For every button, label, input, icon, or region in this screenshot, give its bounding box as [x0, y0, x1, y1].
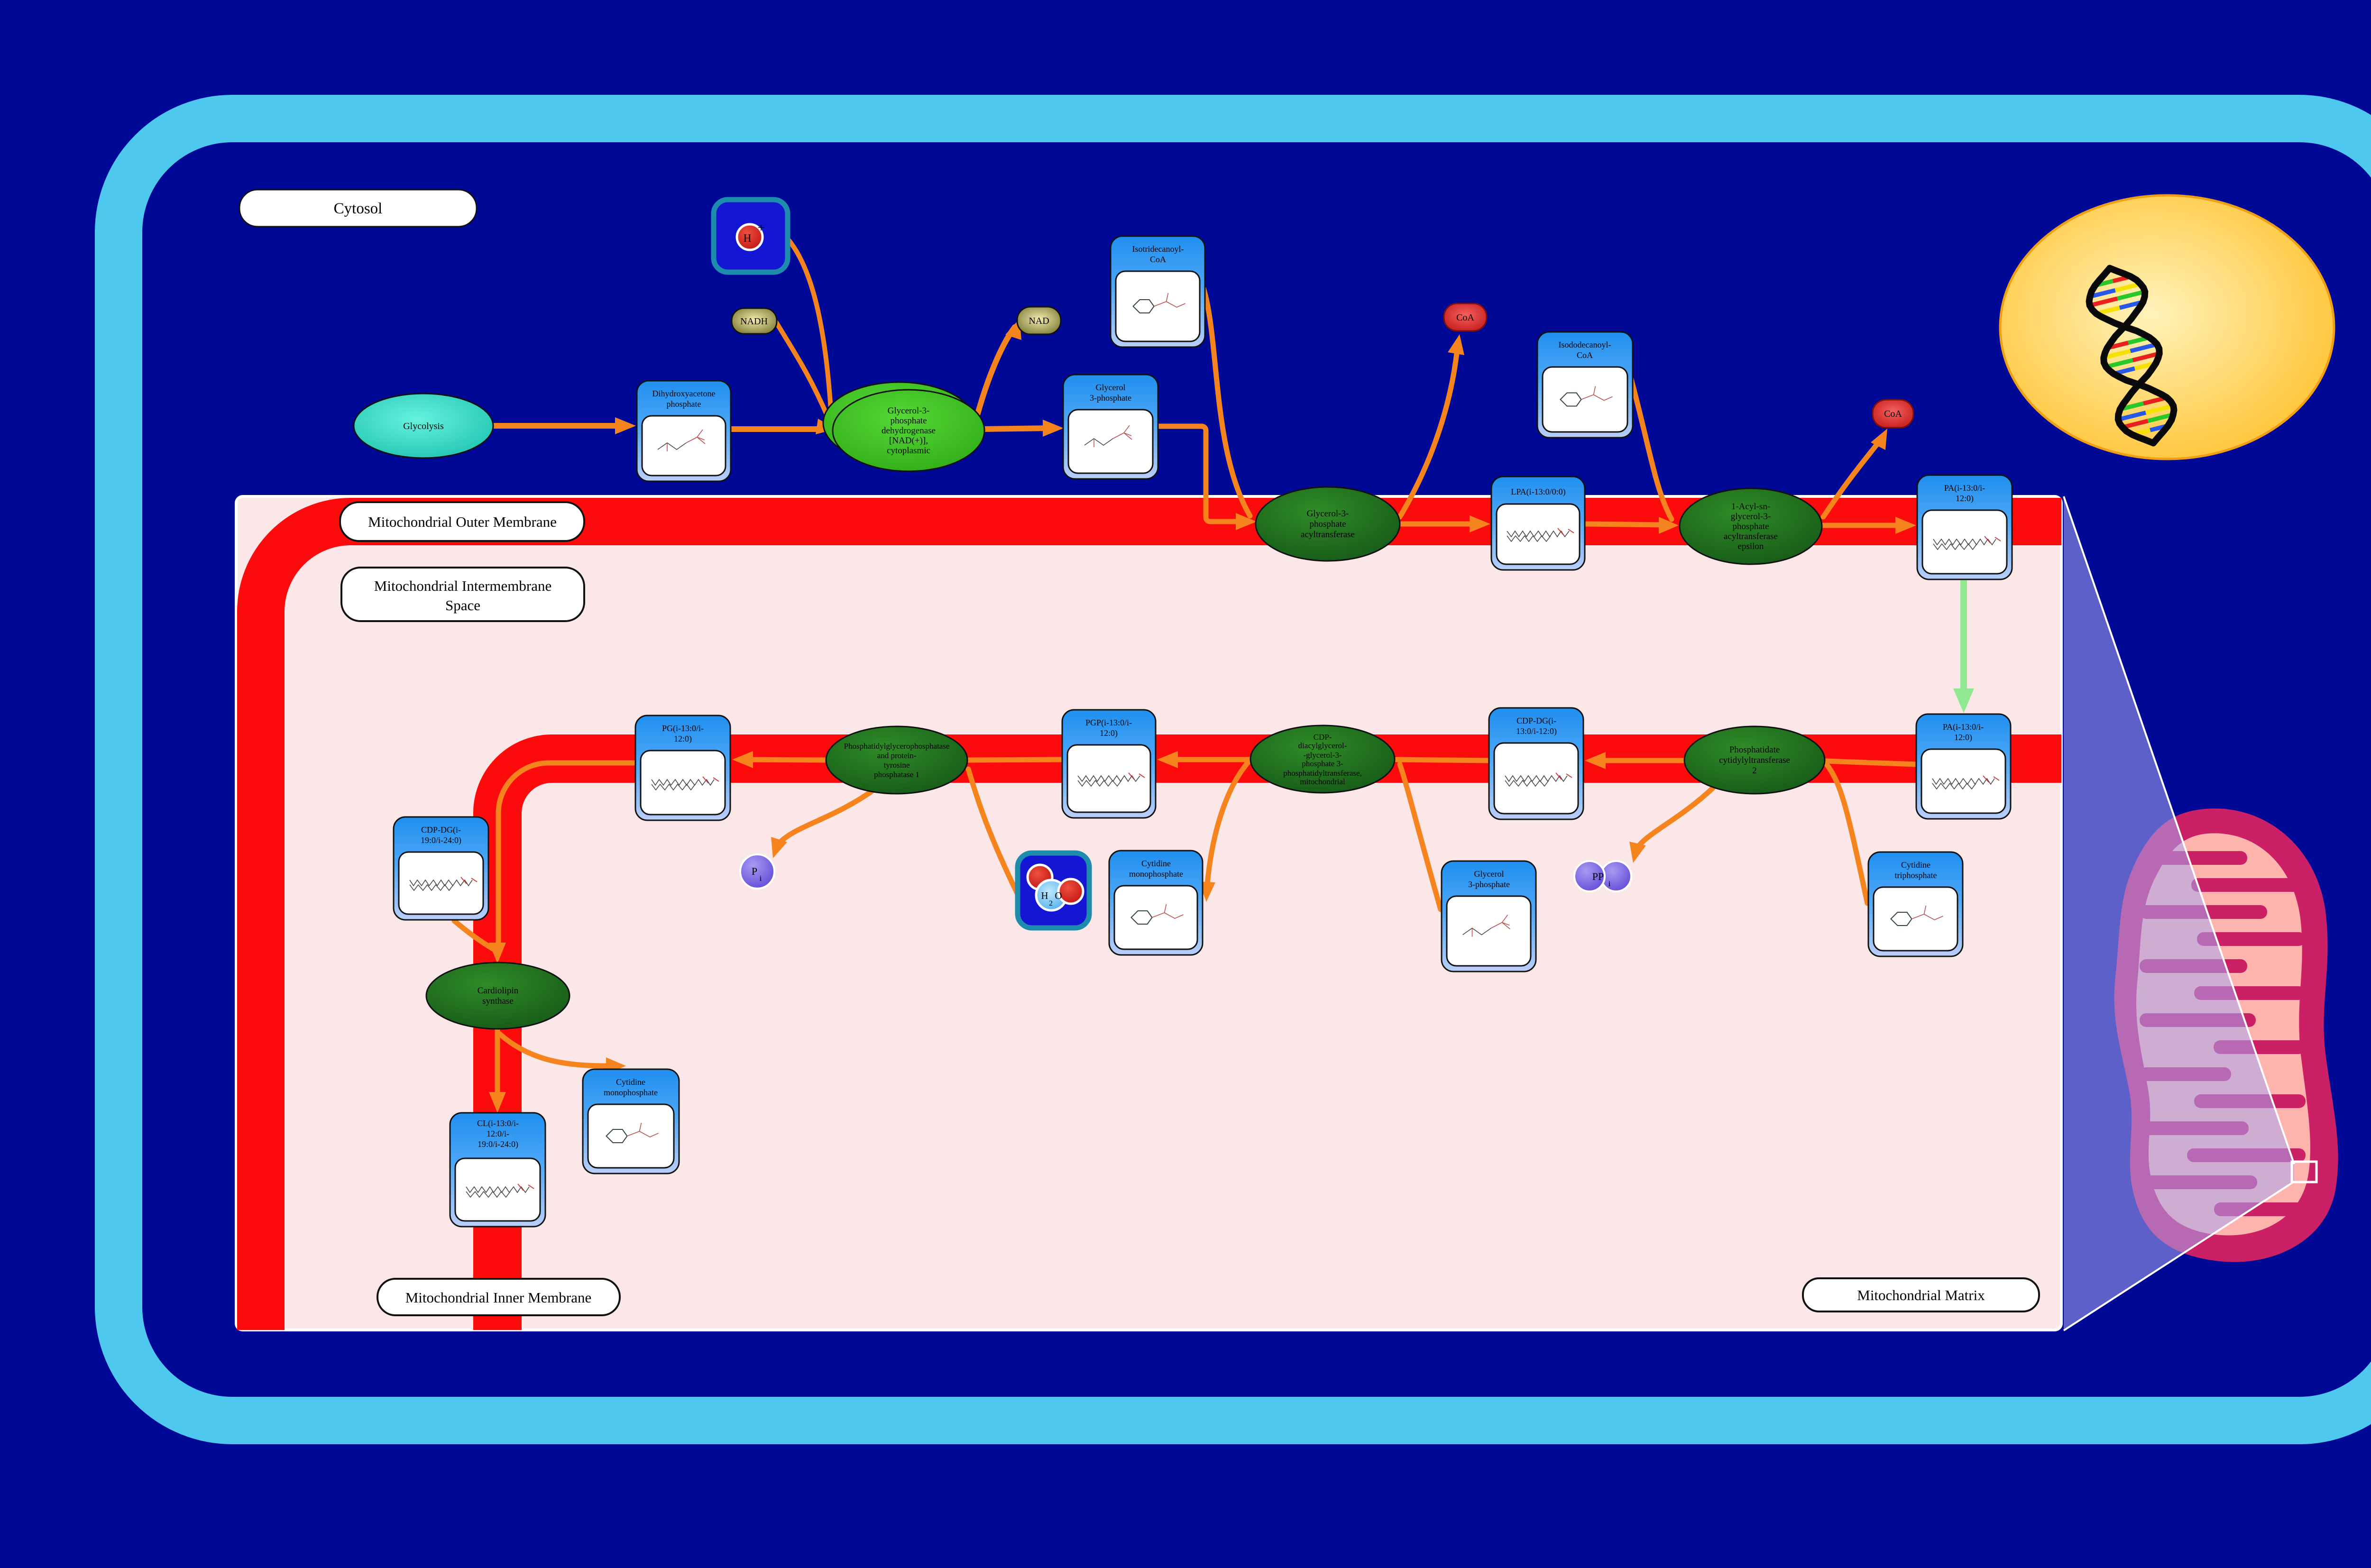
svg-text:phosphate: phosphate: [1309, 519, 1346, 529]
svg-text:CoA: CoA: [1884, 409, 1902, 419]
svg-text:Glycolysis: Glycolysis: [403, 421, 444, 431]
svg-text:PA(i-13:0/i-: PA(i-13:0/i-: [1944, 483, 1985, 493]
svg-text:NAD: NAD: [1029, 316, 1049, 326]
svg-text:Mitochondrial Outer Membrane: Mitochondrial Outer Membrane: [368, 513, 557, 530]
svg-text:Isotridecanoyl-: Isotridecanoyl-: [1132, 244, 1184, 254]
svg-text:CDP-DG(i-: CDP-DG(i-: [1516, 716, 1556, 726]
svg-text:phosphatidyltransferase,: phosphatidyltransferase,: [1283, 769, 1362, 778]
svg-text:CDP-: CDP-: [1314, 733, 1332, 742]
svg-text:Cardiolipin: Cardiolipin: [478, 986, 519, 996]
svg-text:Mitochondrial Intermembrane: Mitochondrial Intermembrane: [374, 578, 551, 594]
svg-text:12:0): 12:0): [1100, 728, 1118, 738]
svg-text:cytidylyltransferase: cytidylyltransferase: [1719, 755, 1790, 765]
svg-text:+: +: [757, 220, 764, 235]
svg-text:i: i: [760, 874, 762, 883]
svg-text:phosphatase 1: phosphatase 1: [874, 770, 919, 779]
svg-text:H: H: [1041, 890, 1048, 901]
svg-text:12:0/i-: 12:0/i-: [487, 1129, 509, 1138]
svg-text:19:0/i-24:0): 19:0/i-24:0): [421, 835, 461, 845]
svg-text:Space: Space: [445, 597, 480, 614]
svg-text:NADH: NADH: [740, 316, 768, 327]
svg-text:CDP-DG(i-: CDP-DG(i-: [421, 825, 461, 835]
svg-text:phosphate: phosphate: [667, 399, 701, 409]
svg-text:Glycerol-3-: Glycerol-3-: [1307, 509, 1349, 519]
svg-text:12:0): 12:0): [1956, 494, 1974, 504]
svg-text:-glycerol-3-: -glycerol-3-: [1303, 751, 1342, 760]
svg-text:[NAD(+)],: [NAD(+)],: [889, 436, 928, 446]
svg-text:Cytosol: Cytosol: [334, 200, 383, 217]
svg-text:Glycerol: Glycerol: [1474, 869, 1504, 879]
svg-text:3-phosphate: 3-phosphate: [1090, 393, 1131, 403]
svg-text:Phosphatidylglycerophosphatase: Phosphatidylglycerophosphatase: [844, 742, 950, 751]
svg-text:triphosphate: triphosphate: [1895, 871, 1937, 880]
svg-text:Glycerol: Glycerol: [1096, 383, 1126, 392]
svg-text:acyltransferase: acyltransferase: [1724, 532, 1778, 541]
svg-text:monophosphate: monophosphate: [604, 1088, 658, 1097]
svg-text:PP: PP: [1592, 871, 1604, 882]
svg-text:Dihydroxyacetone: Dihydroxyacetone: [652, 389, 716, 398]
svg-text:2: 2: [1049, 899, 1053, 908]
svg-text:H: H: [744, 232, 752, 244]
svg-text:monophosphate: monophosphate: [1129, 869, 1183, 879]
svg-text:3-phosphate: 3-phosphate: [1468, 880, 1510, 889]
svg-text:phosphate: phosphate: [890, 416, 927, 426]
svg-text:dehydrogenase: dehydrogenase: [882, 426, 936, 436]
svg-text:acyltransferase: acyltransferase: [1301, 530, 1355, 540]
svg-text:Glycerol-3-: Glycerol-3-: [888, 406, 930, 416]
svg-text:CoA: CoA: [1150, 255, 1166, 264]
svg-text:O: O: [1055, 890, 1062, 901]
svg-text:PGP(i-13:0/i-: PGP(i-13:0/i-: [1085, 718, 1132, 728]
svg-text:2: 2: [1752, 766, 1757, 776]
svg-text:CoA: CoA: [1456, 312, 1474, 323]
svg-text:tyrosine: tyrosine: [884, 761, 910, 770]
svg-text:synthase: synthase: [482, 996, 513, 1006]
svg-text:diacylglycerol-: diacylglycerol-: [1298, 741, 1347, 750]
svg-text:19:0/i-24:0): 19:0/i-24:0): [478, 1139, 518, 1149]
svg-text:mitochondrial: mitochondrial: [1300, 777, 1345, 786]
svg-text:PA(i-13:0/i-: PA(i-13:0/i-: [1943, 722, 1984, 732]
svg-text:LPA(i-13:0/0:0): LPA(i-13:0/0:0): [1511, 487, 1565, 497]
svg-text:12:0): 12:0): [1954, 733, 1972, 743]
svg-text:Mitochondrial Matrix: Mitochondrial Matrix: [1857, 1287, 1985, 1303]
svg-text:12:0): 12:0): [674, 734, 692, 744]
svg-text:P: P: [752, 865, 757, 877]
svg-text:and protein-: and protein-: [877, 751, 917, 760]
svg-text:CL(i-13:0/i-: CL(i-13:0/i-: [477, 1119, 519, 1128]
svg-text:1-Acyl-sn-: 1-Acyl-sn-: [1731, 502, 1770, 512]
svg-text:PG(i-13:0/i-: PG(i-13:0/i-: [662, 724, 704, 734]
svg-text:Phosphatidate: Phosphatidate: [1729, 745, 1780, 755]
svg-text:epsilon: epsilon: [1738, 541, 1764, 551]
svg-text:phosphate: phosphate: [1732, 522, 1769, 532]
svg-text:Isododecanoyl-: Isododecanoyl-: [1559, 340, 1611, 349]
svg-text:glycerol-3-: glycerol-3-: [1731, 512, 1771, 522]
svg-text:Cytidine: Cytidine: [1141, 859, 1171, 868]
svg-text:Cytidine: Cytidine: [1901, 860, 1930, 870]
svg-text:i: i: [1608, 879, 1611, 888]
svg-text:phosphate 3-: phosphate 3-: [1302, 759, 1343, 768]
svg-text:cytoplasmic: cytoplasmic: [887, 446, 930, 456]
svg-text:Mitochondrial Inner Membrane: Mitochondrial Inner Membrane: [405, 1289, 592, 1306]
svg-text:CoA: CoA: [1577, 350, 1593, 360]
svg-text:Cytidine: Cytidine: [616, 1077, 645, 1087]
svg-text:13:0/i-12:0): 13:0/i-12:0): [1516, 726, 1557, 736]
